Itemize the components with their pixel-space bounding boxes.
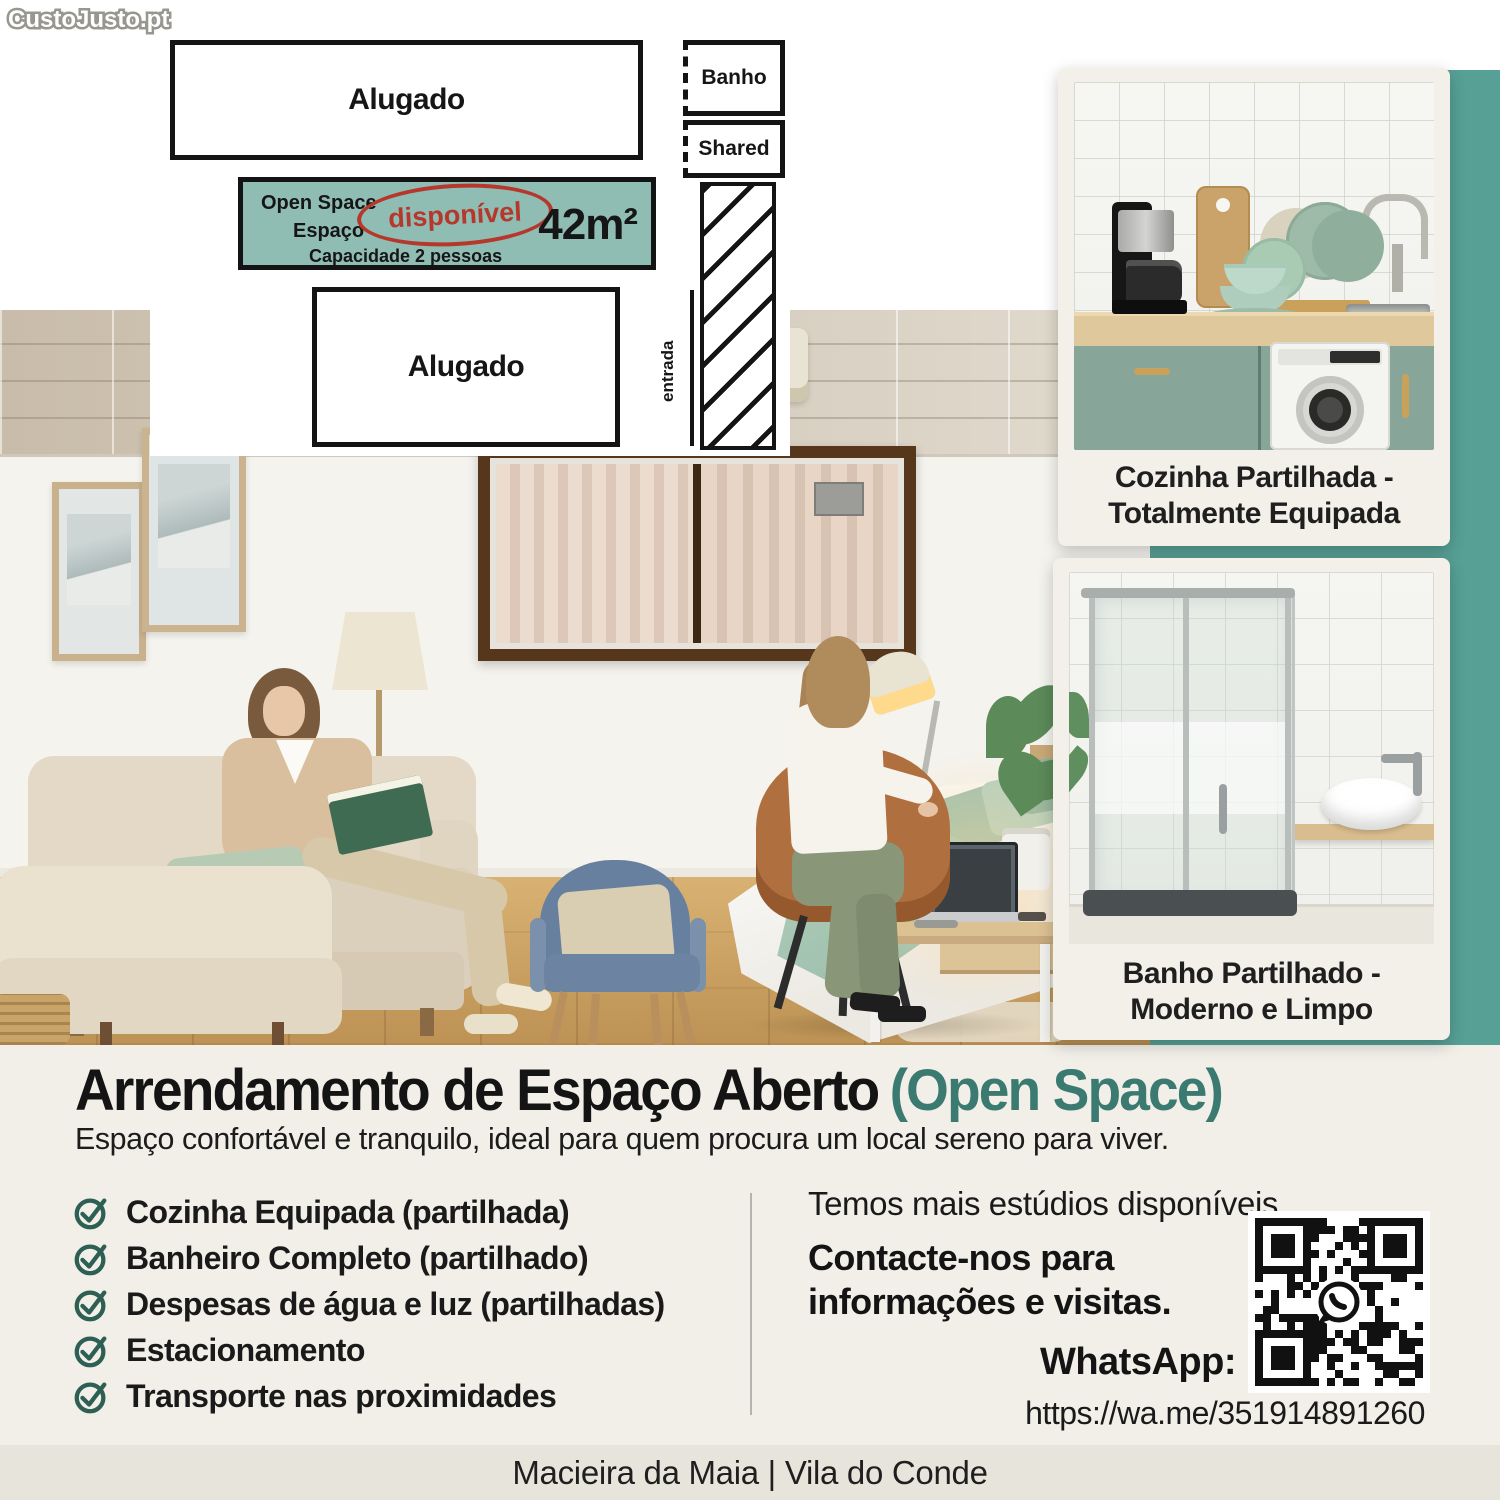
feature-item: Transporte nas proximidades	[72, 1373, 665, 1419]
plant-leaf	[1069, 692, 1089, 738]
shower-handle	[1219, 784, 1227, 834]
floor-plan-open-space-room: Open Space Espaço Capacidade 2 pessoas d…	[238, 177, 656, 270]
kitchen-photo	[1074, 82, 1434, 450]
vessel-sink	[1321, 778, 1421, 830]
kitchen-photo-card: Cozinha Partilhada - Totalmente Equipada	[1058, 68, 1450, 546]
bathroom-caption-line1: Banho Partilhado -	[1053, 956, 1450, 992]
location-bar: Macieira da Maia | Vila do Conde	[0, 1445, 1500, 1500]
wall-art-frame	[142, 428, 246, 632]
curtain	[701, 464, 898, 643]
rented-label: Alugado	[348, 83, 465, 117]
capacity-label: Capacidade 2 pessoas	[309, 246, 502, 267]
bathroom-photo-card: Banho Partilhado - Moderno e Limpo	[1053, 558, 1450, 1040]
feature-item: Banheiro Completo (partilhado)	[72, 1235, 665, 1281]
vertical-divider	[750, 1193, 752, 1415]
window	[478, 446, 916, 661]
check-icon	[72, 1331, 110, 1369]
floor-plan: Alugado Open Space Espaço Capacidade 2 p…	[150, 0, 790, 456]
washing-machine	[1270, 342, 1390, 450]
listing-details-section: Arrendamento de Espaço Aberto(Open Space…	[0, 1045, 1500, 1445]
whatsapp-label: WhatsApp:	[950, 1341, 1236, 1384]
coffee-maker	[1112, 202, 1187, 314]
bath-label: Banho	[701, 66, 766, 90]
bathroom-caption-line2: Moderno e Limpo	[1053, 992, 1450, 1028]
floor-plan-stairs	[700, 182, 776, 450]
feature-item: Estacionamento	[72, 1327, 665, 1373]
whatsapp-qr-code	[1248, 1211, 1430, 1393]
area-label: 42m²	[538, 200, 637, 250]
check-icon	[72, 1377, 110, 1415]
check-icon	[72, 1193, 110, 1231]
more-studios-text: Temos mais estúdios disponíveis.	[808, 1185, 1287, 1223]
feature-label: Banheiro Completo (partilhado)	[126, 1240, 588, 1277]
wall-art-frame	[52, 482, 146, 661]
subtitle: Espaço confortável e tranquilo, ideal pa…	[75, 1121, 1169, 1157]
floor-plan-rented-unit-top: Alugado	[170, 40, 643, 160]
floor-lamp-shade	[332, 612, 428, 690]
phone	[1018, 912, 1046, 921]
shower-tray	[1083, 890, 1297, 916]
whatsapp-url: https://wa.me/351914891260	[990, 1395, 1460, 1432]
bathroom-photo	[1069, 572, 1434, 944]
check-icon	[72, 1239, 110, 1277]
entrance-label: entrada	[658, 296, 678, 446]
floor-plan-shared: Shared	[683, 120, 785, 178]
rented-label: Alugado	[408, 350, 525, 384]
page-title: Arrendamento de Espaço Aberto(Open Space…	[75, 1057, 1222, 1124]
floor-plan-bath: Banho	[683, 40, 785, 116]
available-badge: disponível	[356, 179, 555, 251]
kitchen-caption-line1: Cozinha Partilhada -	[1058, 460, 1450, 496]
location-text: Macieira da Maia | Vila do Conde	[512, 1454, 987, 1492]
feature-label: Despesas de água e luz (partilhadas)	[126, 1286, 665, 1323]
feature-list: Cozinha Equipada (partilhada) Banheiro C…	[72, 1189, 665, 1419]
title-main: Arrendamento de Espaço Aberto	[75, 1058, 878, 1123]
contact-text-line2: informações e visitas.	[808, 1281, 1171, 1323]
feature-label: Cozinha Equipada (partilhada)	[126, 1194, 569, 1231]
espaco-label: Espaço	[293, 220, 364, 243]
available-label: disponível	[388, 196, 523, 234]
contact-text-line1: Contacte-nos para	[808, 1237, 1114, 1279]
floor-plan-rented-unit-bottom: Alugado	[312, 287, 620, 447]
feature-label: Estacionamento	[126, 1332, 365, 1369]
countertop	[1074, 312, 1434, 346]
feature-item: Despesas de água e luz (partilhadas)	[72, 1281, 665, 1327]
feature-item: Cozinha Equipada (partilhada)	[72, 1189, 665, 1235]
kitchen-caption-line2: Totalmente Equipada	[1058, 496, 1450, 532]
title-highlight: (Open Space)	[890, 1058, 1222, 1123]
logo-text: CustoJusto.pt	[8, 6, 169, 33]
shared-label: Shared	[698, 137, 769, 161]
curtain	[496, 464, 693, 643]
feature-label: Transporte nas proximidades	[126, 1378, 556, 1415]
custojusto-logo: CustoJusto.pt	[4, 2, 254, 43]
rental-flyer-poster: Alugado Open Space Espaço Capacidade 2 p…	[0, 0, 1500, 1500]
check-icon	[72, 1285, 110, 1323]
wicker-basket	[0, 994, 70, 1045]
